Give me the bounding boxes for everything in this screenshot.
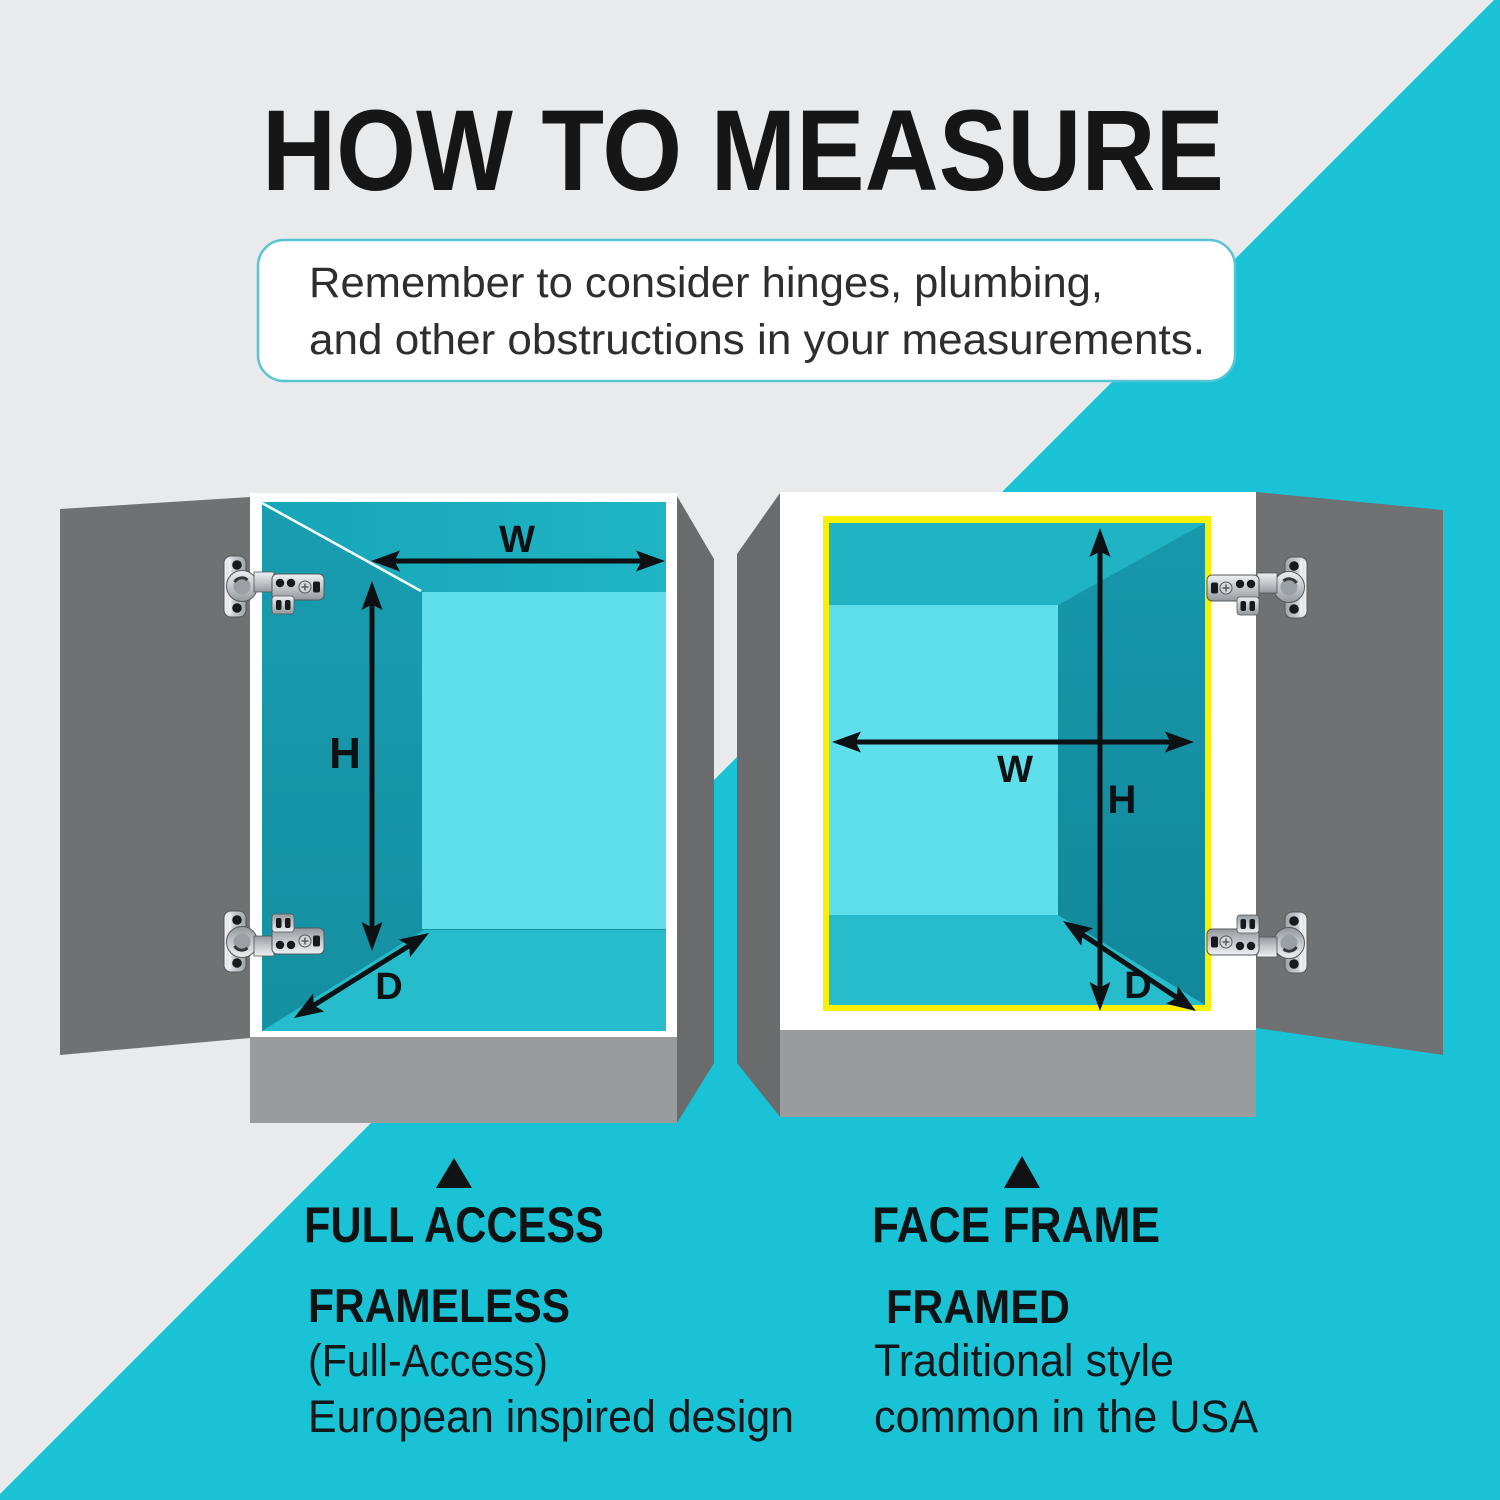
- svg-text:European inspired design: European inspired design: [308, 1391, 794, 1442]
- svg-text:D: D: [1124, 965, 1151, 1007]
- svg-text:HOW TO MEASURE: HOW TO MEASURE: [262, 87, 1224, 215]
- svg-text:H: H: [1108, 778, 1137, 822]
- svg-text:H: H: [329, 729, 361, 778]
- svg-text:FRAMED: FRAMED: [886, 1280, 1070, 1333]
- svg-text:common in the USA: common in the USA: [874, 1391, 1258, 1442]
- svg-text:Traditional style: Traditional style: [874, 1335, 1174, 1386]
- svg-text:D: D: [375, 966, 402, 1008]
- svg-text:Remember to consider hinges, p: Remember to consider hinges, plumbing,: [309, 259, 1103, 307]
- svg-text:FRAMELESS: FRAMELESS: [308, 1279, 570, 1332]
- svg-text:(Full-Access): (Full-Access): [308, 1335, 548, 1386]
- svg-text:FULL ACCESS: FULL ACCESS: [304, 1197, 604, 1253]
- svg-text:and other obstructions in your: and other obstructions in your measureme…: [309, 316, 1205, 364]
- svg-text:W: W: [499, 519, 535, 561]
- svg-text:FACE FRAME: FACE FRAME: [872, 1197, 1160, 1253]
- svg-text:W: W: [997, 749, 1033, 791]
